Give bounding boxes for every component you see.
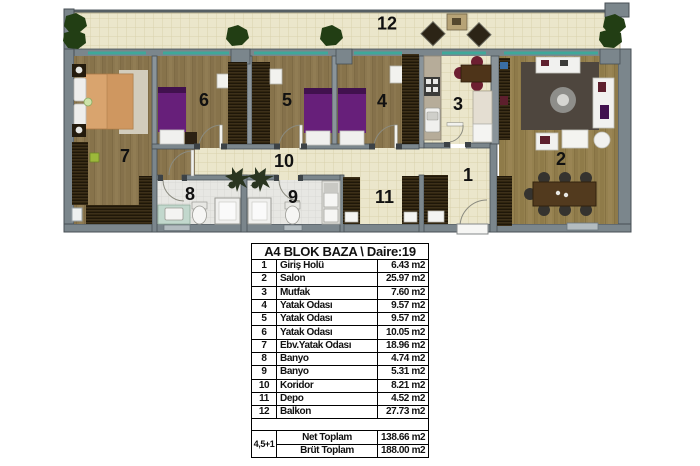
svg-text:3: 3 (453, 94, 463, 114)
svg-text:4: 4 (377, 91, 387, 111)
svg-text:6: 6 (199, 90, 209, 110)
svg-text:11: 11 (375, 187, 394, 207)
svg-text:9: 9 (288, 187, 298, 207)
svg-text:7: 7 (120, 146, 130, 166)
svg-text:10: 10 (274, 151, 294, 171)
svg-text:1: 1 (463, 165, 473, 185)
svg-text:8: 8 (185, 184, 195, 204)
svg-text:12: 12 (377, 14, 397, 34)
svg-text:2: 2 (556, 149, 566, 169)
svg-text:5: 5 (282, 90, 292, 110)
